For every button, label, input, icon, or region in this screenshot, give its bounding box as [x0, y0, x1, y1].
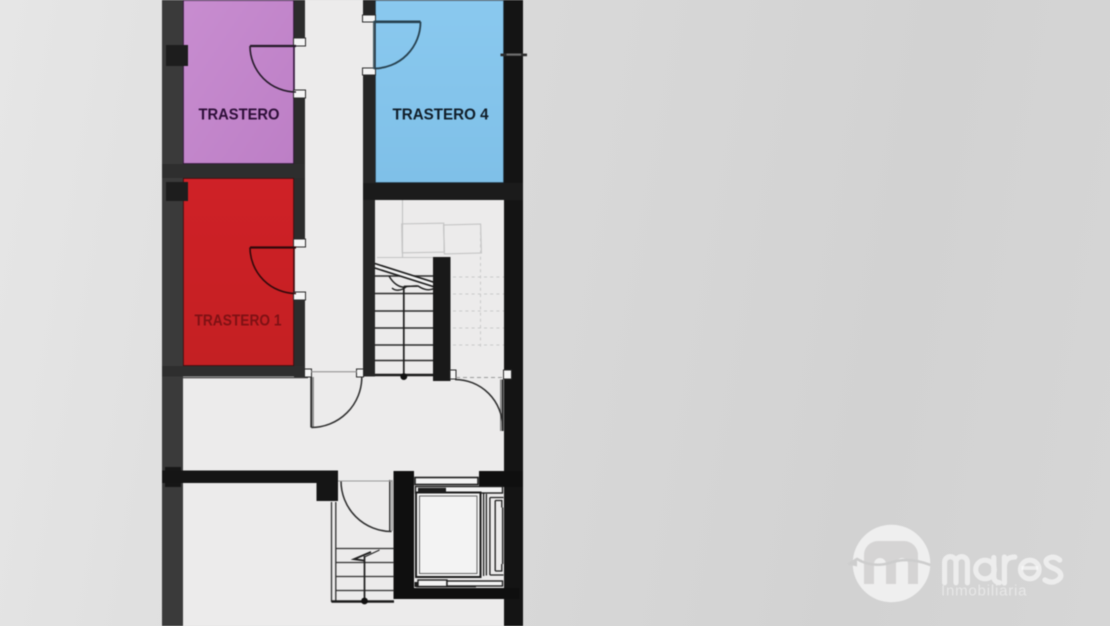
- svg-text:TRASTERO 1: TRASTERO 1: [195, 313, 282, 330]
- svg-text:Inmobiliaria: Inmobiliaria: [941, 583, 1027, 600]
- svg-text:TRASTERO 4: TRASTERO 4: [393, 107, 489, 124]
- svg-text:TRASTERO: TRASTERO: [199, 107, 280, 124]
